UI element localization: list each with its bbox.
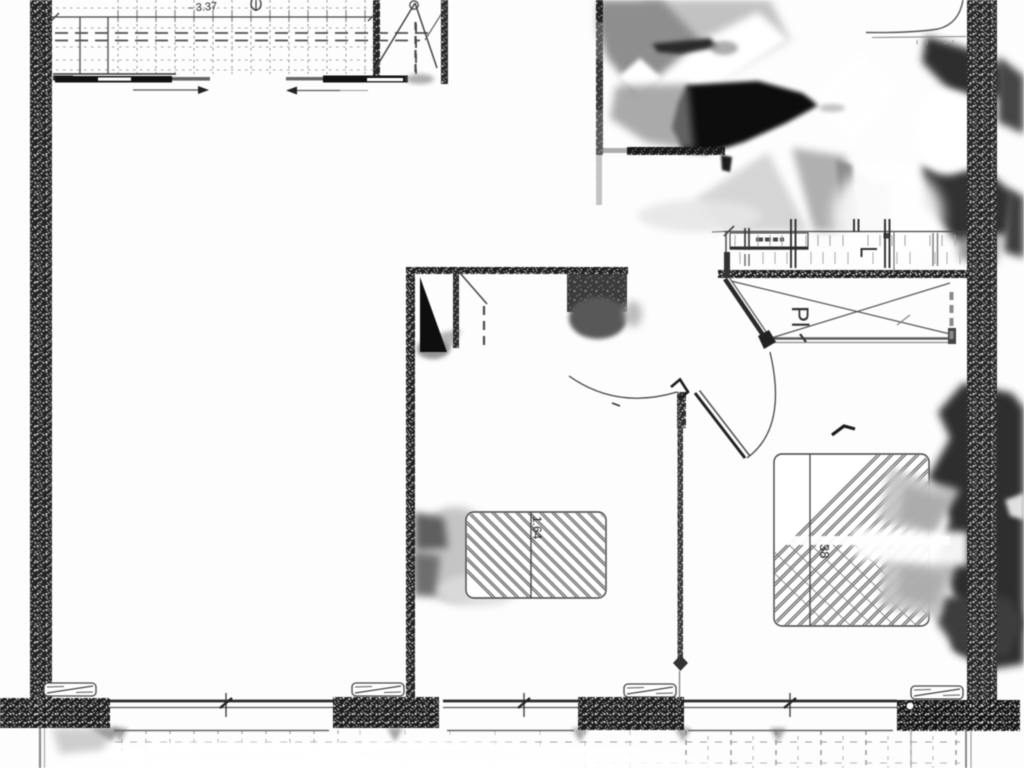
svg-text:1.64: 1.64 (530, 516, 544, 540)
svg-text:3.37: 3.37 (195, 1, 217, 14)
svg-text:38: 38 (817, 544, 832, 558)
svg-text:Pl: Pl (786, 306, 813, 327)
